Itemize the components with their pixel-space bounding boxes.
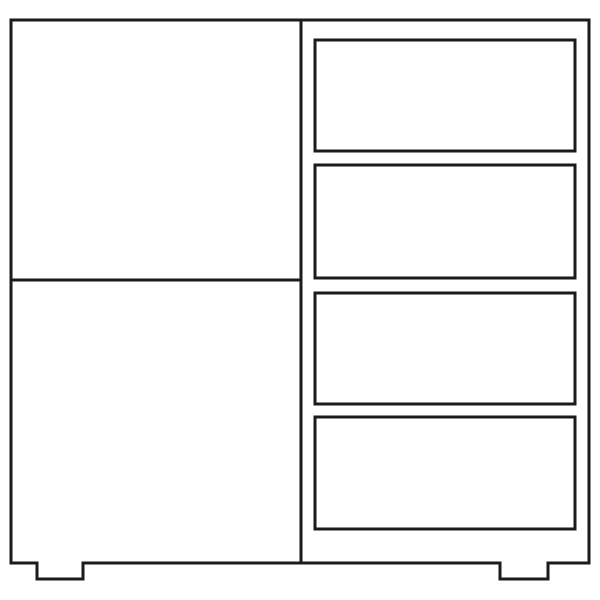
- drawer-front-3: [315, 293, 575, 404]
- cabinet-svg: [0, 0, 600, 600]
- cabinet-line-drawing: [0, 0, 600, 600]
- drawer-front-2: [315, 165, 575, 278]
- drawer-front-4: [315, 417, 575, 529]
- drawer-front-1: [315, 40, 575, 151]
